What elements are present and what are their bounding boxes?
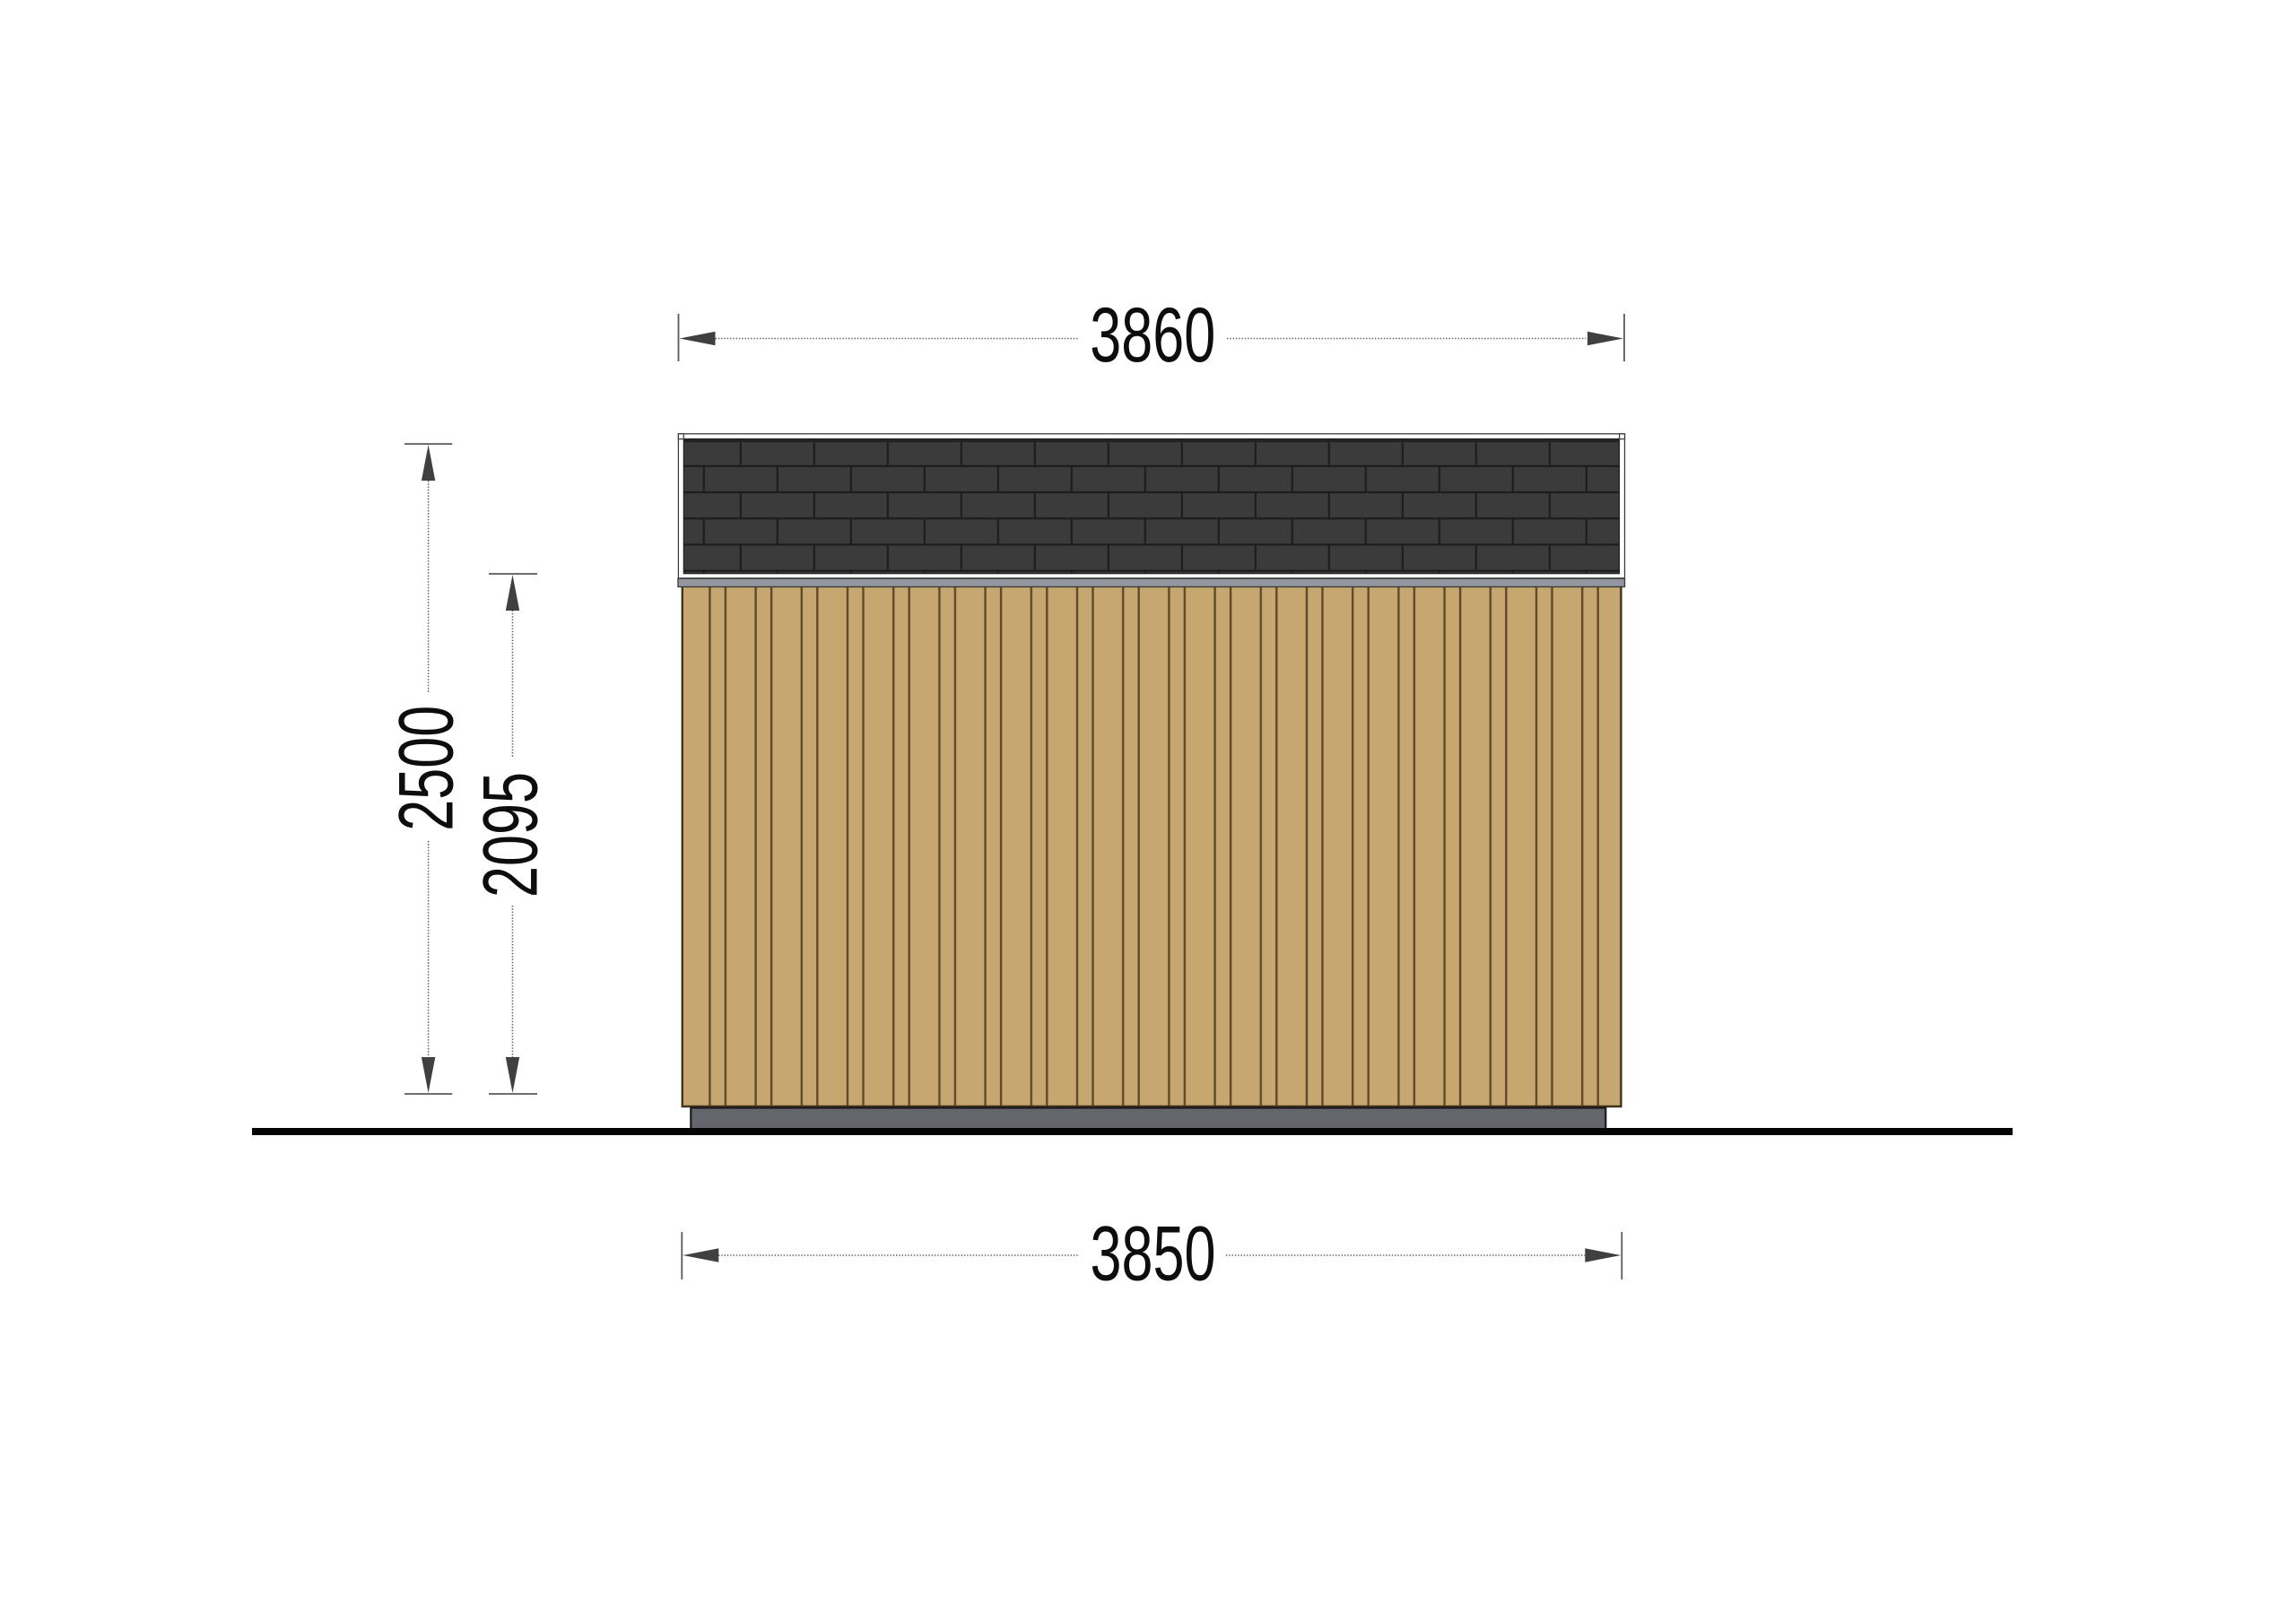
svg-text:2500: 2500 <box>384 706 470 831</box>
svg-text:3860: 3860 <box>1090 292 1215 378</box>
svg-text:3850: 3850 <box>1091 1210 1216 1297</box>
svg-text:2095: 2095 <box>467 772 553 898</box>
